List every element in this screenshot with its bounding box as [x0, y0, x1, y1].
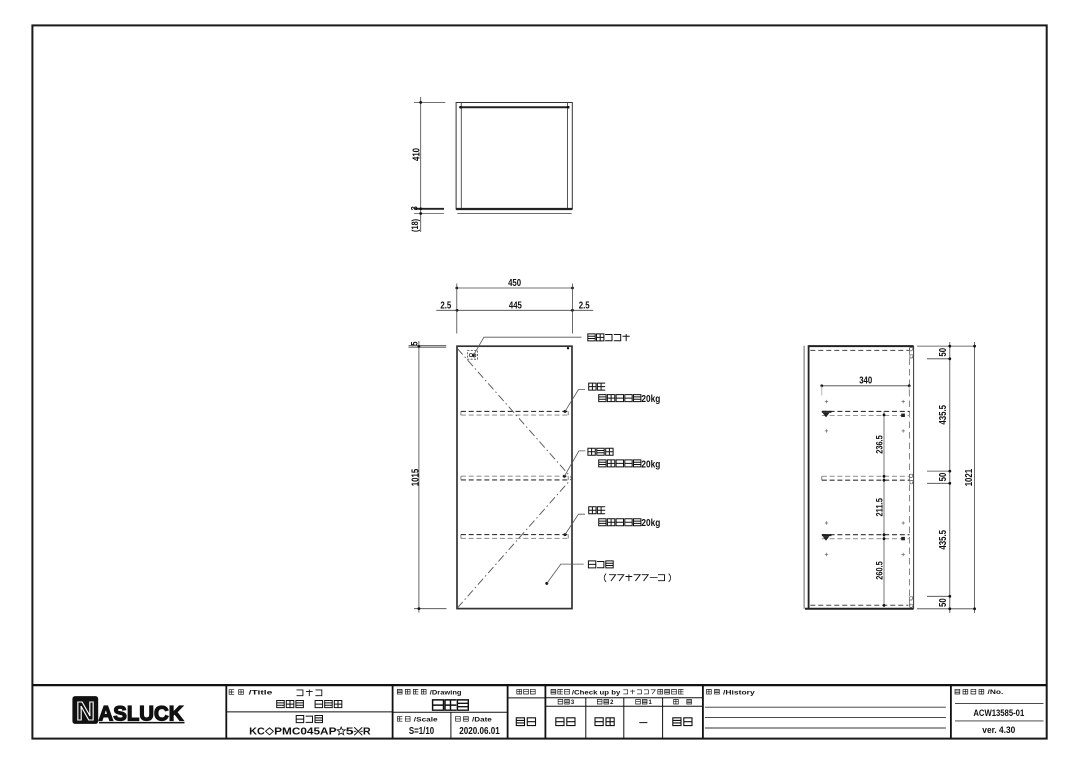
svg-text:2020.06.01: 2020.06.01: [459, 725, 500, 737]
svg-text:2.5: 2.5: [440, 301, 451, 312]
svg-text:450: 450: [508, 278, 521, 289]
svg-text:3: 3: [409, 206, 420, 210]
svg-text:5: 5: [408, 342, 419, 346]
svg-text:/No.: /No.: [988, 690, 1004, 696]
svg-text:ACW13585-01: ACW13585-01: [973, 708, 1024, 719]
svg-text:50: 50: [938, 472, 949, 481]
svg-text:ver. 4.30: ver. 4.30: [982, 725, 1015, 736]
svg-text:260.5: 260.5: [873, 561, 884, 579]
svg-text:2.5: 2.5: [579, 301, 590, 312]
svg-text:PMC045AP: PMC045AP: [274, 726, 336, 738]
svg-text:20kg: 20kg: [641, 458, 660, 470]
svg-text:50: 50: [938, 598, 949, 607]
svg-text:KC: KC: [249, 726, 265, 738]
svg-text:/Scale: /Scale: [414, 717, 439, 723]
svg-text:1015: 1015: [410, 469, 421, 487]
svg-text:/Drawing: /Drawing: [430, 690, 462, 696]
svg-text:445: 445: [509, 301, 522, 312]
svg-text:435.5: 435.5: [938, 530, 949, 550]
svg-text:20kg: 20kg: [641, 393, 660, 405]
svg-text:1021: 1021: [964, 469, 975, 487]
svg-text:211.5: 211.5: [873, 498, 884, 516]
svg-text:50: 50: [938, 348, 949, 357]
svg-text:5: 5: [346, 726, 354, 738]
svg-text:(18): (18): [409, 219, 420, 232]
svg-text:20kg: 20kg: [641, 517, 660, 529]
svg-text:435.5: 435.5: [938, 405, 949, 425]
svg-text:/History: /History: [723, 690, 756, 696]
svg-text:/Check up by: /Check up by: [572, 690, 621, 696]
svg-text:/Date: /Date: [472, 717, 493, 723]
svg-text:N: N: [76, 696, 95, 726]
svg-text:S=1/10: S=1/10: [409, 725, 434, 737]
svg-text:340: 340: [859, 375, 872, 386]
svg-text:236.5: 236.5: [873, 435, 884, 453]
svg-text:R: R: [363, 726, 371, 738]
svg-text:/Title: /Title: [249, 691, 274, 697]
svg-text:410: 410: [411, 148, 422, 161]
